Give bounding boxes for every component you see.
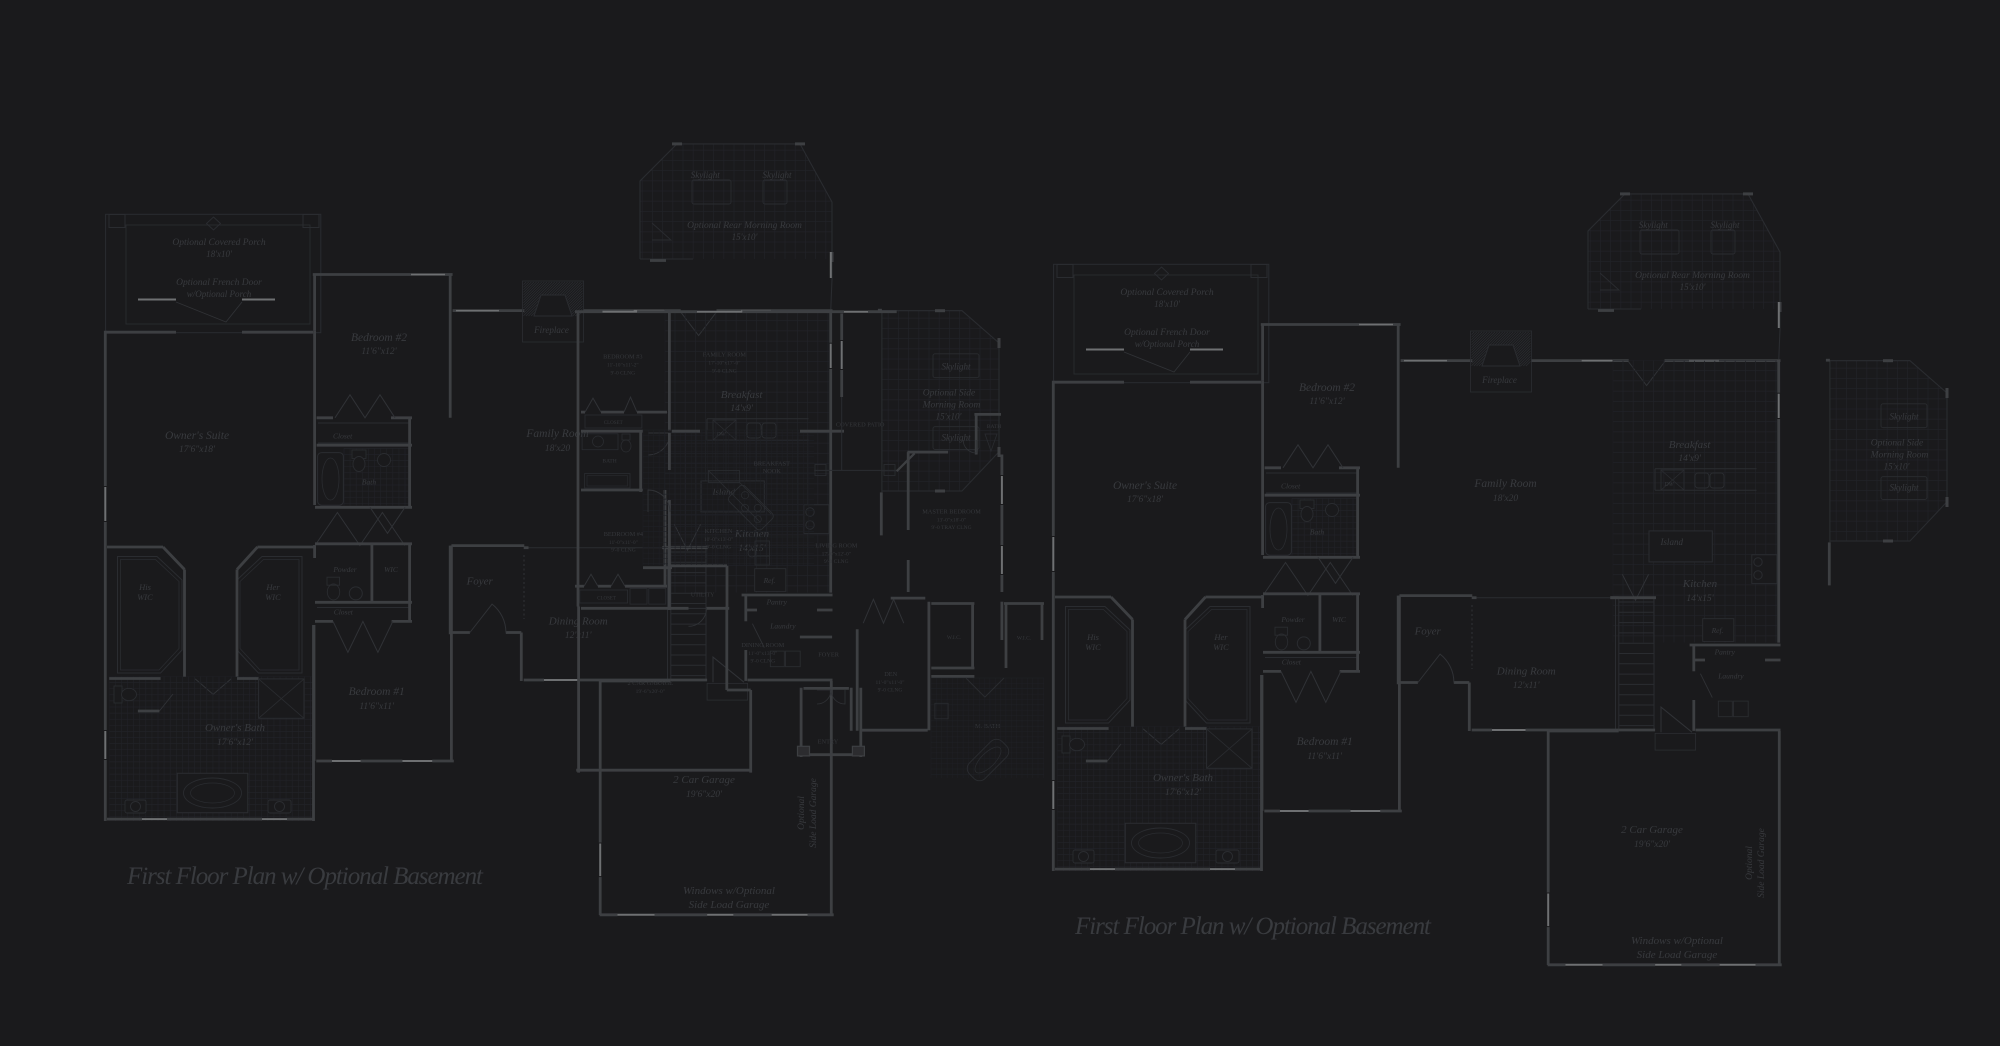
svg-text:Windows w/Optional: Windows w/Optional xyxy=(1631,935,1723,947)
svg-text:11'6"x11': 11'6"x11' xyxy=(1307,752,1343,762)
svg-text:Owner's Suite: Owner's Suite xyxy=(1113,480,1177,492)
svg-text:9'-0 CLNG: 9'-0 CLNG xyxy=(706,545,731,551)
svg-text:Fireplace: Fireplace xyxy=(1481,375,1517,385)
svg-text:Ref.: Ref. xyxy=(763,576,776,585)
svg-text:15'x10': 15'x10' xyxy=(732,232,759,242)
svg-text:2 Car Garage: 2 Car Garage xyxy=(673,774,735,786)
svg-text:Optional: Optional xyxy=(1745,846,1755,880)
svg-text:Morning Room: Morning Room xyxy=(1870,451,1929,461)
svg-text:Foyer: Foyer xyxy=(466,576,494,588)
svg-text:9'-0 CLNG: 9'-0 CLNG xyxy=(750,659,775,665)
svg-text:UTILITY: UTILITY xyxy=(691,593,715,599)
svg-text:Bath: Bath xyxy=(362,478,376,487)
svg-text:FOYER: FOYER xyxy=(818,652,839,659)
svg-text:Bedroom #1: Bedroom #1 xyxy=(349,686,405,698)
svg-text:2 Car Garage: 2 Car Garage xyxy=(1621,824,1683,836)
svg-text:11'-10"x11'-2": 11'-10"x11'-2" xyxy=(607,363,639,369)
svg-text:Kitchen: Kitchen xyxy=(1682,578,1718,590)
svg-text:w/Optional Porch: w/Optional Porch xyxy=(187,289,252,299)
svg-text:Skylight: Skylight xyxy=(1890,411,1919,421)
svg-text:Optional Covered Porch: Optional Covered Porch xyxy=(172,238,265,248)
svg-text:9'-0 CLNG: 9'-0 CLNG xyxy=(712,369,737,375)
svg-text:COVERED PATIO: COVERED PATIO xyxy=(836,421,885,428)
svg-text:BREAKFAST: BREAKFAST xyxy=(754,460,790,467)
svg-text:17'6"x18': 17'6"x18' xyxy=(179,445,216,455)
svg-text:9'-0 CLNG: 9'-0 CLNG xyxy=(824,559,849,565)
svg-text:NOOK: NOOK xyxy=(763,468,782,475)
svg-text:Laundry: Laundry xyxy=(769,622,796,631)
svg-text:11'-0"x11'-0": 11'-0"x11'-0" xyxy=(609,540,638,546)
svg-text:Optional French Door: Optional French Door xyxy=(176,278,262,288)
svg-text:Closet: Closet xyxy=(1281,482,1301,491)
svg-text:WIC: WIC xyxy=(1213,642,1229,652)
svg-text:19'6"x20': 19'6"x20' xyxy=(1634,840,1671,850)
svg-text:First Floor Plan w/ Optional: First Floor Plan w/ Optional Basement xyxy=(126,863,484,890)
svg-text:18'x20: 18'x20 xyxy=(1493,494,1518,504)
svg-text:WIC: WIC xyxy=(384,565,399,574)
svg-text:WIC: WIC xyxy=(265,592,281,602)
svg-text:13'-0"x18'-0": 13'-0"x18'-0" xyxy=(937,518,966,524)
svg-text:DW: DW xyxy=(715,432,726,438)
svg-text:BEDROOM #4: BEDROOM #4 xyxy=(604,531,644,538)
svg-text:Skylight: Skylight xyxy=(691,170,720,180)
svg-text:Family Room: Family Room xyxy=(1473,478,1536,490)
svg-text:Morning Room: Morning Room xyxy=(922,401,981,411)
svg-text:w/Optional Porch: w/Optional Porch xyxy=(1135,339,1200,349)
svg-text:Pantry: Pantry xyxy=(766,598,788,607)
svg-text:Optional: Optional xyxy=(797,796,807,830)
svg-text:LIVING ROOM: LIVING ROOM xyxy=(815,543,858,550)
svg-text:17'6"x12': 17'6"x12' xyxy=(1165,788,1202,798)
svg-text:14'x9': 14'x9' xyxy=(730,404,753,414)
svg-text:Pantry: Pantry xyxy=(1714,648,1736,657)
svg-text:Side Load Garage: Side Load Garage xyxy=(689,899,770,911)
svg-text:BATH: BATH xyxy=(602,459,616,465)
svg-text:15'x10': 15'x10' xyxy=(936,412,963,422)
svg-text:DW: DW xyxy=(1663,482,1674,488)
svg-text:11'6"x12': 11'6"x12' xyxy=(361,347,397,357)
svg-text:Skylight: Skylight xyxy=(942,361,971,371)
svg-text:11'-0"x13'-0": 11'-0"x13'-0" xyxy=(748,651,777,657)
svg-text:BATH: BATH xyxy=(987,424,1001,430)
svg-text:BEDROOM #3: BEDROOM #3 xyxy=(603,354,642,361)
svg-text:2 CAR GARAGE: 2 CAR GARAGE xyxy=(628,680,674,687)
svg-text:9'-0 CLNG: 9'-0 CLNG xyxy=(611,548,636,554)
svg-text:Owner's Suite: Owner's Suite xyxy=(165,430,229,442)
svg-text:Optional Rear Morning Room: Optional Rear Morning Room xyxy=(1635,271,1750,281)
svg-text:18'x20: 18'x20 xyxy=(545,444,570,454)
svg-text:Fireplace: Fireplace xyxy=(533,325,569,335)
svg-text:9'-0 CLNG: 9'-0 CLNG xyxy=(610,371,635,377)
svg-text:Owner's Bath: Owner's Bath xyxy=(1153,772,1214,784)
svg-text:Optional Covered Porch: Optional Covered Porch xyxy=(1120,288,1213,298)
svg-text:18'x10': 18'x10' xyxy=(206,249,233,259)
svg-text:18'x10': 18'x10' xyxy=(1154,299,1181,309)
svg-text:Closet: Closet xyxy=(1282,658,1302,667)
svg-text:9'-0 TRAY CLNG: 9'-0 TRAY CLNG xyxy=(931,525,971,531)
svg-text:First Floor Plan w/ Optional: First Floor Plan w/ Optional Basement xyxy=(1074,913,1432,940)
svg-text:ENTRY: ENTRY xyxy=(818,738,839,745)
svg-text:17'6"x12': 17'6"x12' xyxy=(217,738,254,748)
svg-text:19'-6"x20'-0": 19'-6"x20'-0" xyxy=(636,689,665,695)
svg-text:9'-0 CLNG: 9'-0 CLNG xyxy=(878,688,903,694)
svg-text:Optional French Door: Optional French Door xyxy=(1124,328,1210,338)
svg-text:Skylight: Skylight xyxy=(763,170,792,180)
svg-text:Powder: Powder xyxy=(1280,615,1304,624)
svg-text:Ref.: Ref. xyxy=(1711,626,1724,635)
svg-text:19'6"x20': 19'6"x20' xyxy=(686,790,723,800)
svg-text:Skylight: Skylight xyxy=(1890,483,1919,493)
svg-text:Side Load Garage: Side Load Garage xyxy=(1757,828,1767,898)
svg-text:Island: Island xyxy=(1659,537,1683,547)
svg-text:WIC: WIC xyxy=(137,592,153,602)
svg-text:Laundry: Laundry xyxy=(1717,672,1744,681)
svg-text:Skylight: Skylight xyxy=(1639,220,1668,230)
svg-text:11'6"x11': 11'6"x11' xyxy=(359,702,395,712)
svg-text:Windows w/Optional: Windows w/Optional xyxy=(683,885,775,897)
svg-text:His: His xyxy=(1086,632,1100,642)
svg-text:CLOSET: CLOSET xyxy=(604,421,623,426)
svg-text:WIC: WIC xyxy=(1332,615,1347,624)
svg-text:Side Load Garage: Side Load Garage xyxy=(809,778,819,848)
svg-text:12'x11': 12'x11' xyxy=(1513,681,1541,691)
svg-text:W.I.C.: W.I.C. xyxy=(1017,635,1032,641)
svg-text:MASTER BEDROOM: MASTER BEDROOM xyxy=(922,509,981,516)
svg-text:Dining Room: Dining Room xyxy=(1496,666,1556,678)
svg-text:Her: Her xyxy=(265,582,280,592)
svg-text:CLOSET: CLOSET xyxy=(597,596,616,601)
svg-text:17'-0"x12'-0": 17'-0"x12'-0" xyxy=(822,552,851,558)
svg-text:W.I.C.: W.I.C. xyxy=(947,635,962,641)
svg-text:17'6"x18': 17'6"x18' xyxy=(1127,495,1164,505)
svg-text:Breakfast: Breakfast xyxy=(721,389,764,401)
svg-text:Bath: Bath xyxy=(1310,528,1324,537)
svg-text:15'x10': 15'x10' xyxy=(1680,282,1707,292)
svg-text:FAMILY ROOM: FAMILY ROOM xyxy=(703,352,747,359)
svg-text:Foyer: Foyer xyxy=(1414,626,1442,638)
svg-text:Skylight: Skylight xyxy=(1711,220,1740,230)
svg-text:17'-10"x17'-0": 17'-10"x17'-0" xyxy=(708,361,740,367)
svg-text:Owner's Bath: Owner's Bath xyxy=(205,722,266,734)
svg-text:Skylight: Skylight xyxy=(942,433,971,443)
svg-text:11'-0"x11'-0": 11'-0"x11'-0" xyxy=(876,680,905,686)
svg-text:Closet: Closet xyxy=(333,432,353,441)
svg-text:His: His xyxy=(138,582,152,592)
svg-text:Optional Side: Optional Side xyxy=(1871,439,1924,449)
svg-text:KITCHEN: KITCHEN xyxy=(705,528,733,535)
svg-text:Side Load Garage: Side Load Garage xyxy=(1637,949,1718,961)
svg-text:DINING ROOM: DINING ROOM xyxy=(741,642,784,649)
svg-text:DEN: DEN xyxy=(884,671,897,678)
svg-text:Optional Rear Morning Room: Optional Rear Morning Room xyxy=(687,221,802,231)
svg-text:Her: Her xyxy=(1213,632,1228,642)
svg-text:Bedroom #2: Bedroom #2 xyxy=(351,332,407,344)
svg-text:14'x15': 14'x15' xyxy=(1686,594,1714,604)
svg-text:Optional Side: Optional Side xyxy=(923,389,976,399)
svg-text:10'-0"x13'-0": 10'-0"x13'-0" xyxy=(704,537,733,543)
svg-text:15'x10': 15'x10' xyxy=(1884,462,1911,472)
svg-text:14'x9': 14'x9' xyxy=(1678,454,1701,464)
svg-text:Powder: Powder xyxy=(332,565,356,574)
svg-text:WIC: WIC xyxy=(1085,642,1101,652)
svg-text:11'6"x12': 11'6"x12' xyxy=(1309,397,1345,407)
svg-text:Bedroom #1: Bedroom #1 xyxy=(1297,736,1353,748)
svg-text:Breakfast: Breakfast xyxy=(1669,439,1712,451)
svg-text:Bedroom #2: Bedroom #2 xyxy=(1299,382,1355,394)
svg-text:Closet: Closet xyxy=(334,608,354,617)
